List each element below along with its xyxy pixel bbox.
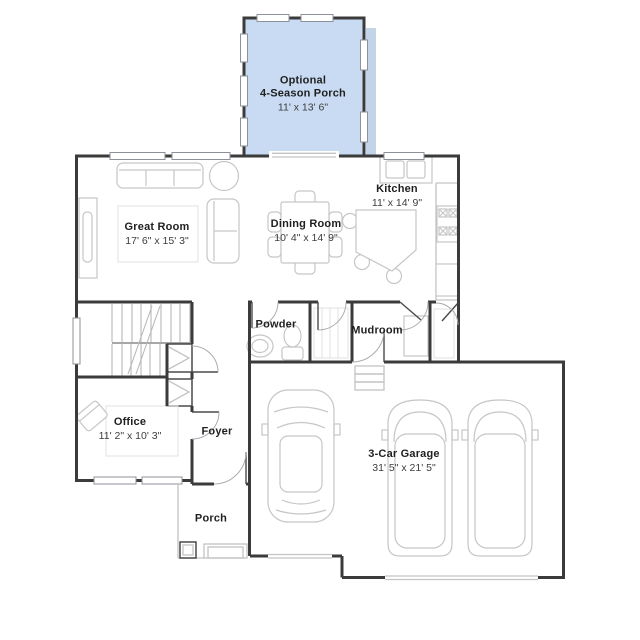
great-room-label: Great Room 17' 6" x 15' 3" xyxy=(125,221,190,247)
fireplace xyxy=(79,198,97,278)
staircase xyxy=(112,304,190,376)
refrigerator xyxy=(436,264,458,296)
kitchen-label: Kitchen 11' x 14' 9" xyxy=(372,183,422,209)
dining-room-label: Dining Room 10' 4" x 14' 9" xyxy=(271,218,342,244)
porch-column xyxy=(180,542,196,558)
office-name: Office xyxy=(99,416,162,429)
front-door xyxy=(214,452,246,484)
garage-name: 3-Car Garage xyxy=(368,448,440,461)
season-porch-name-line2: 4-Season Porch xyxy=(260,87,346,100)
garage-van-1 xyxy=(382,400,458,556)
season-porch-label: Optional 4-Season Porch 11' x 13' 6" xyxy=(260,74,346,113)
porch-steps xyxy=(204,544,247,558)
mudroom-label: Mudroom xyxy=(351,325,403,338)
porch-label: Porch xyxy=(195,513,227,526)
garage-door-large xyxy=(385,576,538,580)
patio-door xyxy=(269,151,339,160)
office-label: Office 11' 2" x 10' 3" xyxy=(99,416,162,442)
great-room-name: Great Room xyxy=(125,221,190,234)
dining-room-dimensions: 10' 4" x 14' 9" xyxy=(271,232,342,244)
kitchen-name: Kitchen xyxy=(372,183,422,196)
pantry-shelves xyxy=(434,309,454,358)
powder-label: Powder xyxy=(256,319,297,332)
foyer-label: Foyer xyxy=(202,426,233,439)
season-porch-name-line1: Optional xyxy=(260,74,346,87)
dining-room-name: Dining Room xyxy=(271,218,342,231)
garage-label: 3-Car Garage 31' 5" x 21' 5" xyxy=(368,448,440,474)
cooktop xyxy=(437,206,458,242)
garage-dimensions: 31' 5" x 21' 5" xyxy=(368,462,440,474)
stair-closet-door xyxy=(192,346,218,372)
mudroom-bench xyxy=(404,316,428,356)
great-room-sofa xyxy=(117,163,203,188)
porch-name: Porch xyxy=(195,513,227,526)
round-side-table xyxy=(210,162,239,191)
office-dimensions: 11' 2" x 10' 3" xyxy=(99,430,162,442)
garage-van-2 xyxy=(462,400,538,556)
under-stair-closets xyxy=(167,344,192,406)
garage-door-small xyxy=(268,555,332,559)
powder-name: Powder xyxy=(256,319,297,332)
foyer-name: Foyer xyxy=(202,426,233,439)
mudroom-name: Mudroom xyxy=(351,325,403,338)
kitchen-sink xyxy=(380,157,432,183)
kitchen-dimensions: 11' x 14' 9" xyxy=(372,197,422,209)
great-room-armchair xyxy=(207,199,239,263)
floor-plan-page: Optional 4-Season Porch 11' x 13' 6" Gre… xyxy=(0,0,640,640)
garage-entry-steps xyxy=(355,366,384,390)
pantry-door xyxy=(436,303,458,325)
great-room-dimensions: 17' 6" x 15' 3" xyxy=(125,235,190,247)
season-porch-dimensions: 11' x 13' 6" xyxy=(260,101,346,113)
garage-car-sedan xyxy=(262,390,340,522)
